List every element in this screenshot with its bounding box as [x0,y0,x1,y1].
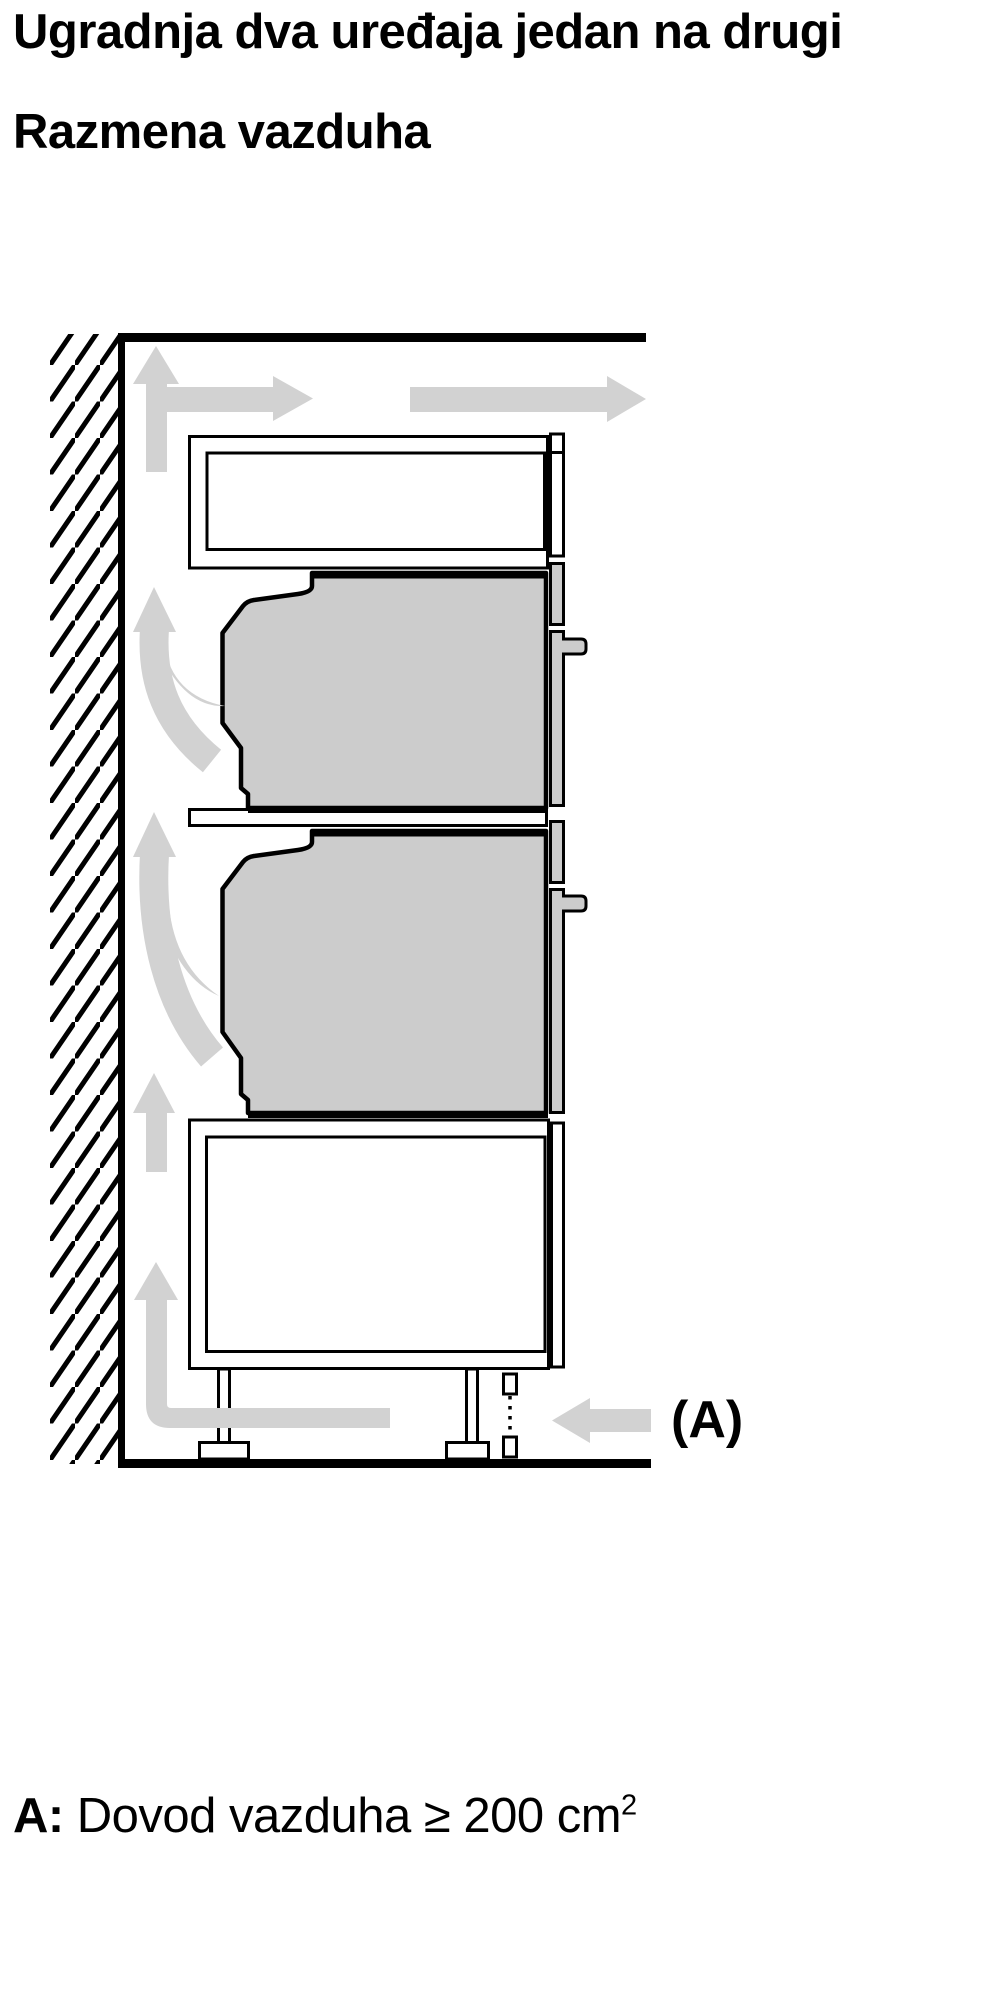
leg-foot-left [200,1443,249,1460]
legend-text-value: Dovod vazduha ≥ 200 cm [77,1789,621,1843]
lower-oven-front-strip-bottom [551,890,564,1113]
installation-diagram [0,0,1000,2000]
upper-oven-front-strip-top [551,564,564,625]
legend-text: Dovod vazduha ≥ 200 cm2 [77,1789,637,1843]
cabinet-leg-right [467,1369,478,1443]
wall-hatching-icon [50,334,118,1464]
leg-foot-right [447,1443,489,1460]
lower-oven-front-strip-top [551,822,564,883]
airflow-corner-arrow-head-icon [134,1262,178,1300]
base-cabinet-side-strip [552,1123,564,1367]
upper-oven-front-strip-bottom [551,632,564,806]
airflow-curved-arrow-lower-head-icon [133,812,176,857]
airflow-inlet-arrow-icon [552,1398,651,1443]
lower-oven-body [223,831,547,1113]
airflow-right-arrow-long-icon [410,376,646,422]
legend-superscript: 2 [621,1790,637,1822]
vent-cutout-marker-bottom [504,1437,517,1457]
airflow-up-arrow-small-icon [133,1073,175,1172]
airflow-curved-arrow-lower-band [154,854,212,1057]
legend-key-a: A: [13,1789,64,1843]
airflow-right-arrow-icon [160,376,313,421]
legend-caption: A:Dovod vazduha ≥ 200 cm2 [13,1788,637,1844]
vent-cutout-marker-top [504,1374,517,1394]
air-inlet-label-a: (A) [671,1392,743,1448]
cabinet-leg-left [219,1369,230,1443]
appliances [223,564,587,1116]
airflow-curved-arrow-upper-head-icon [133,587,176,632]
base-cabinet [190,1120,549,1369]
upper-oven-handle-icon [562,639,586,654]
upper-oven-body [223,573,547,808]
lower-oven-handle-icon [562,896,586,911]
